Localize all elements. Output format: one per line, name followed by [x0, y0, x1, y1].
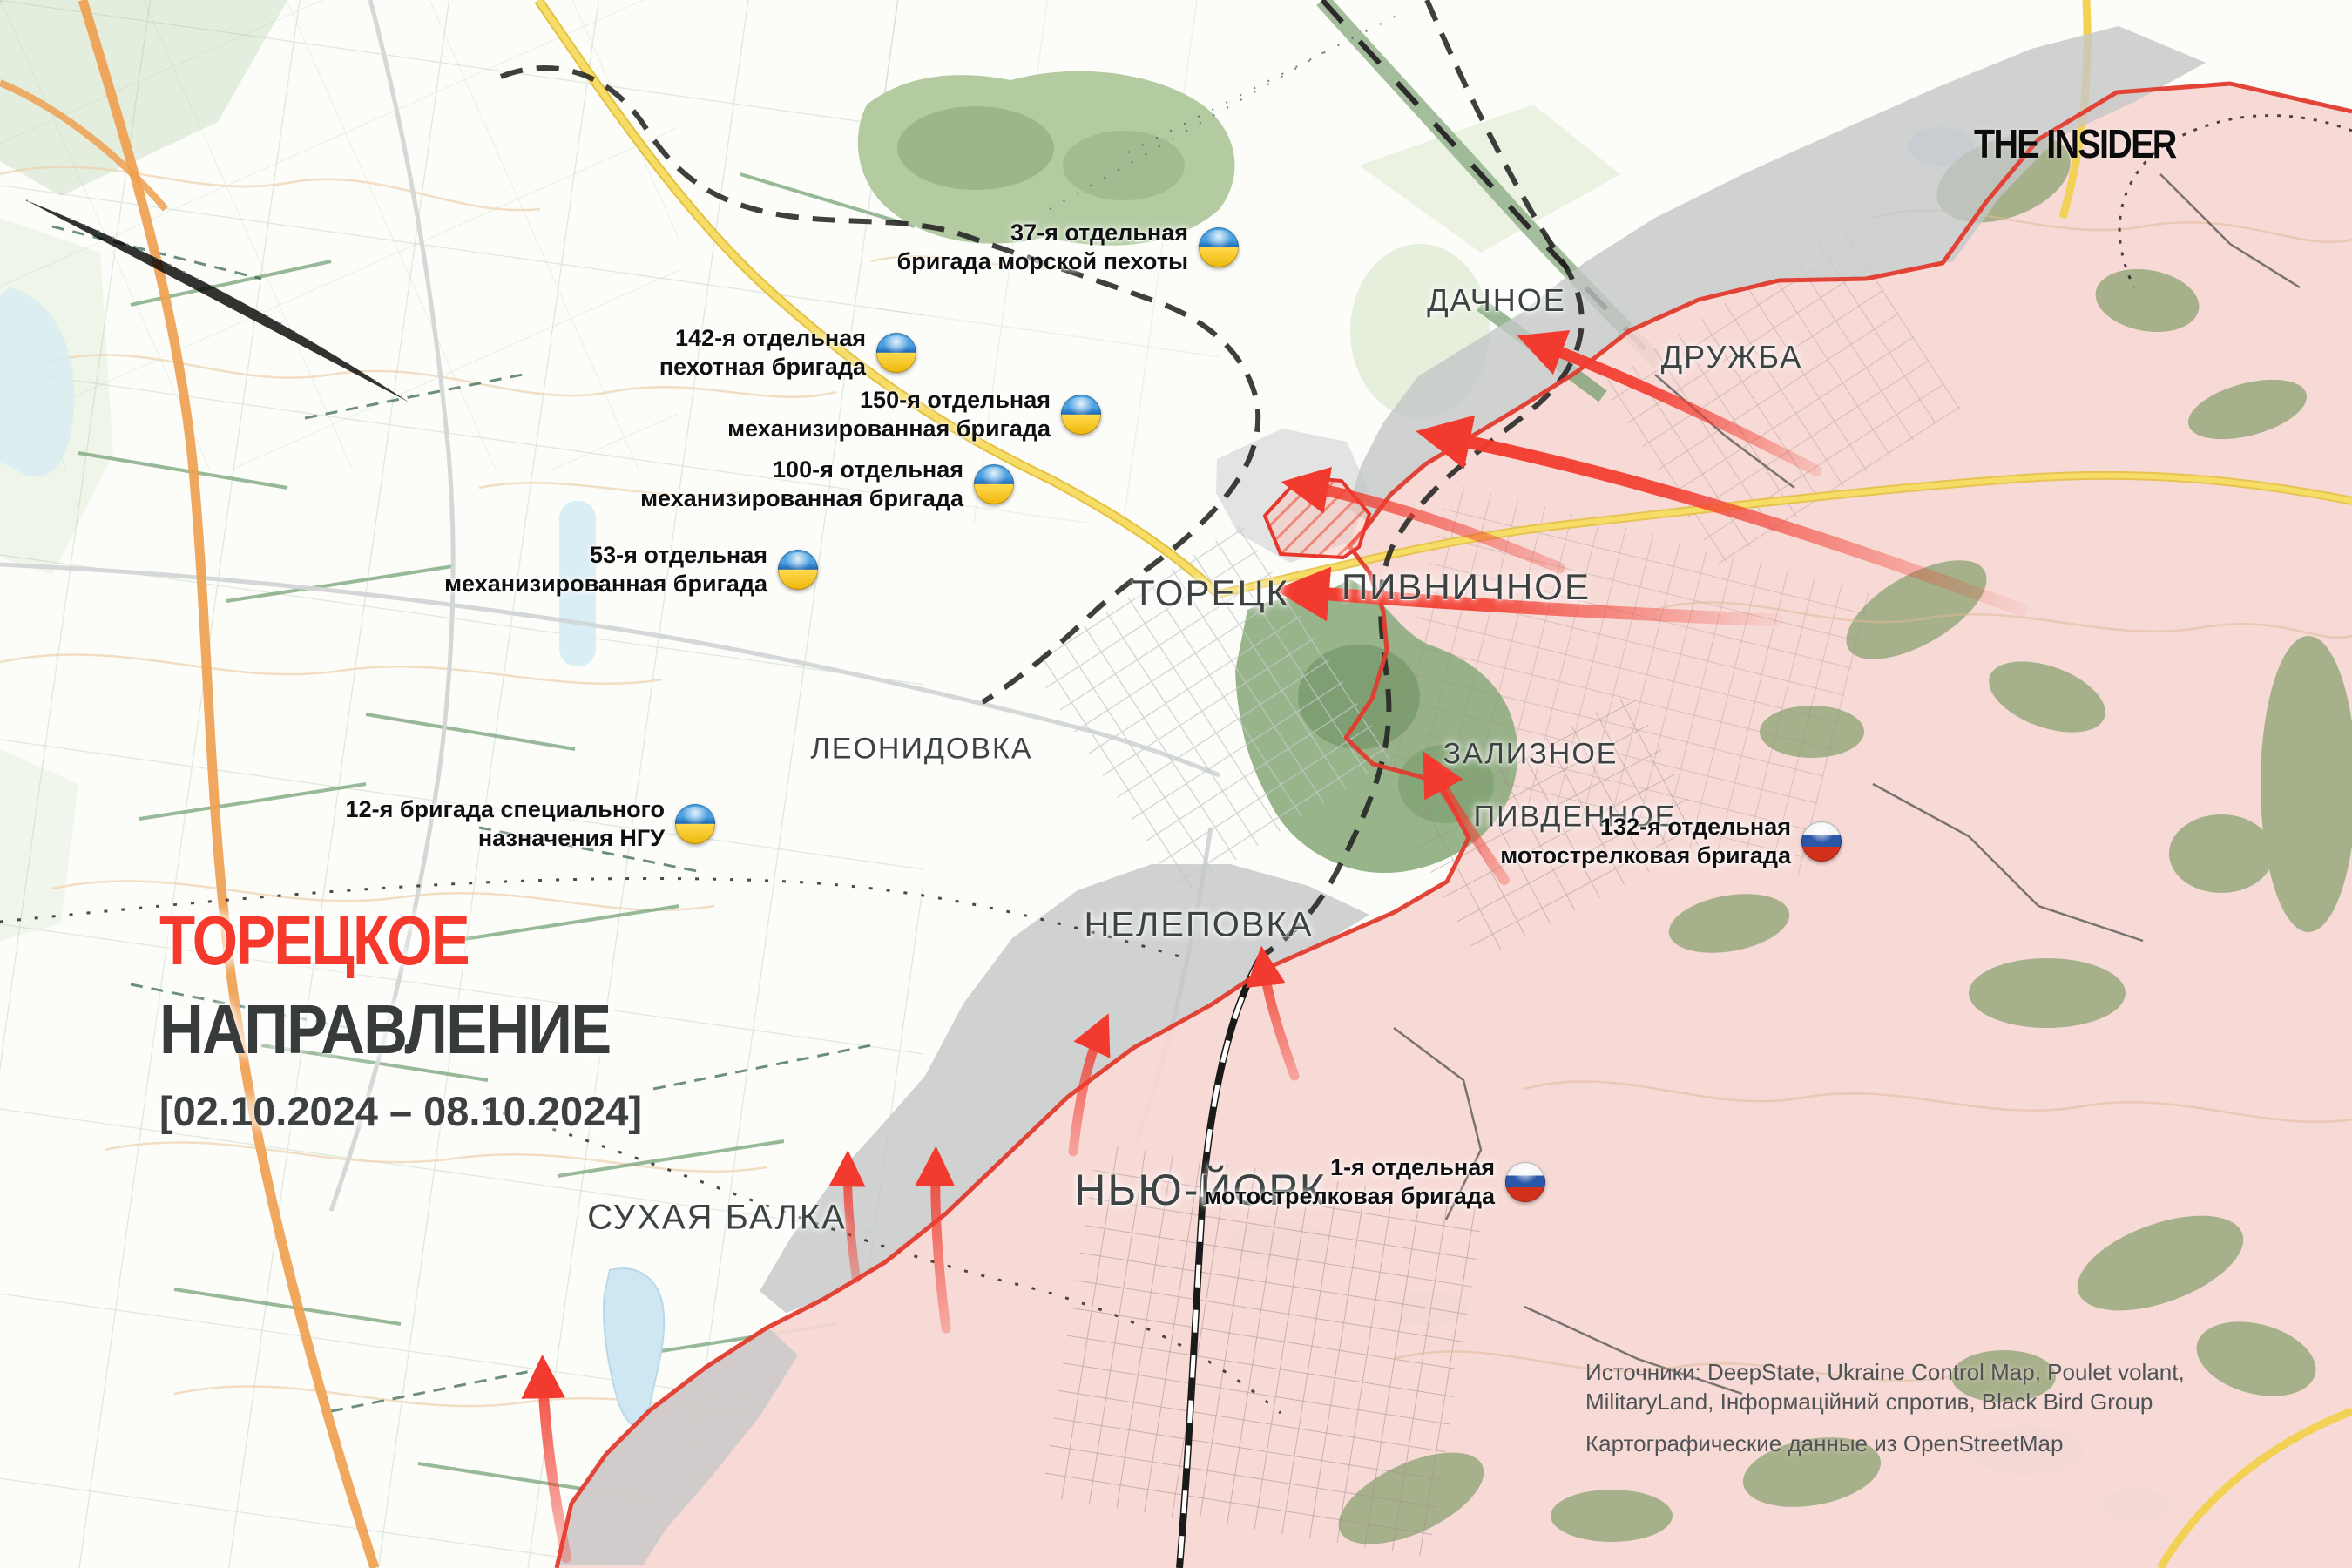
- forest-top: [858, 71, 1235, 246]
- map-poster: THE INSIDER ТОРЕЦКОЕ НАПРАВЛЕНИЕ [02.10.…: [0, 0, 2352, 1568]
- map-canvas: [0, 0, 2352, 1568]
